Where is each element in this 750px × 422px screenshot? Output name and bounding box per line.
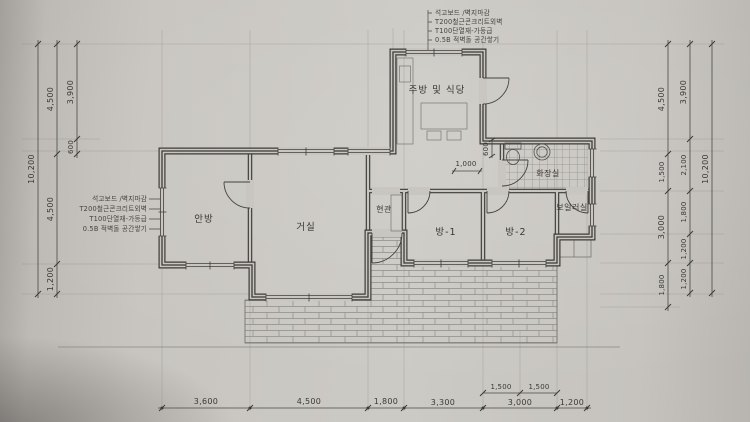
dim-label-bottom-3: 1,800 (374, 397, 398, 406)
dim-label-left-offset: 600 (67, 140, 75, 154)
kitchen-furniture (397, 58, 467, 144)
dim-label-right-inner-hall: 1,500 (658, 161, 666, 182)
dim-label-right-mid-a: 1,200 (680, 238, 688, 259)
dim-label-right-mid-top: 3,900 (679, 80, 688, 104)
room-label-boiler-room: 보일러실 (556, 202, 587, 212)
dimension-lines (38, 40, 712, 408)
kitchen-table-icon (421, 103, 467, 129)
dim-label-bottom-5: 3,000 (508, 398, 532, 407)
dim-label-hall-width: 1,000 (455, 160, 476, 168)
dim-label-left-upper: 4,500 (46, 87, 55, 111)
wall-note-top: 석고보드 /벽지마감 T200철근콘크리트외벽 T100단열재-가등급 0.5B… (428, 8, 503, 50)
floorplan-svg: 3,600 4,500 1,800 3,300 3,000 1,200 1,50… (0, 0, 750, 422)
dim-label-right-mid-boiler: 1,800 (680, 201, 688, 222)
note-line-2: T200철근콘크리트외벽 (434, 17, 503, 26)
dim-label-left-bottom: 1,200 (46, 267, 55, 291)
dim-label-bottom-4: 3,300 (431, 398, 455, 407)
room-label-bedroom1: 방-1 (435, 227, 456, 238)
room-label-bathroom: 화장실 (536, 168, 560, 178)
steps-lines (557, 238, 591, 257)
dim-label-bath-offset: 600 (482, 142, 490, 156)
room-label-entrance: 현관 (376, 204, 392, 214)
note-line-3: T100단열재-가등급 (434, 26, 493, 35)
note-line-2: T200철근콘크리트외벽 (78, 204, 147, 213)
note-line-1: 석고보드 /벽지마감 (92, 194, 147, 203)
room-label-bedroom2: 방-2 (505, 227, 526, 238)
room-label-master-bedroom: 안방 (194, 214, 213, 225)
dim-label-bottom-sub-2: 1,500 (528, 383, 549, 391)
entrance-closet-icon (391, 195, 402, 231)
kitchen-chair-icon (447, 131, 461, 140)
dim-label-right-inner-porch: 1,800 (658, 274, 666, 295)
note-line-1: 석고보드 /벽지마감 (435, 8, 490, 17)
dim-label-bottom-2: 4,500 (297, 397, 321, 406)
dim-label-bottom-6: 1,200 (560, 398, 584, 407)
dim-label-right-total: 10,200 (701, 154, 710, 184)
kitchen-sink-icon (400, 66, 411, 82)
dim-label-left-total: 10,200 (27, 154, 36, 184)
room-label-kitchen-dining: 주방 및 식당 (409, 84, 466, 96)
dim-label-right-mid-b: 1,200 (680, 268, 688, 289)
dim-label-left-lower: 4,500 (46, 197, 55, 221)
dim-label-bottom-1: 3,600 (194, 397, 218, 406)
note-line-3: T100단열재-가등급 (88, 214, 147, 223)
room-label-living-room: 거실 (296, 222, 315, 233)
dim-label-right-mid-bath: 2,100 (680, 154, 688, 175)
dim-label-bottom-sub-1: 1,500 (490, 383, 511, 391)
floorplan-photo: 3,600 4,500 1,800 3,300 3,000 1,200 1,50… (0, 0, 750, 422)
kitchen-chair-icon (427, 131, 441, 140)
wall-note-left: 석고보드 /벽지마감 T200철근콘크리트외벽 T100단열재-가등급 0.5B… (78, 194, 160, 233)
dim-label-right-inner-top: 4,500 (657, 87, 666, 111)
note-line-4: 0.5B 적벽돌 공간쌓기 (435, 35, 499, 44)
note-line-4: 0.5B 적벽돌 공간쌓기 (83, 224, 147, 233)
dim-label-right-inner-rooms: 3,000 (657, 215, 666, 239)
dim-label-left-kitchen: 3,900 (66, 80, 75, 104)
